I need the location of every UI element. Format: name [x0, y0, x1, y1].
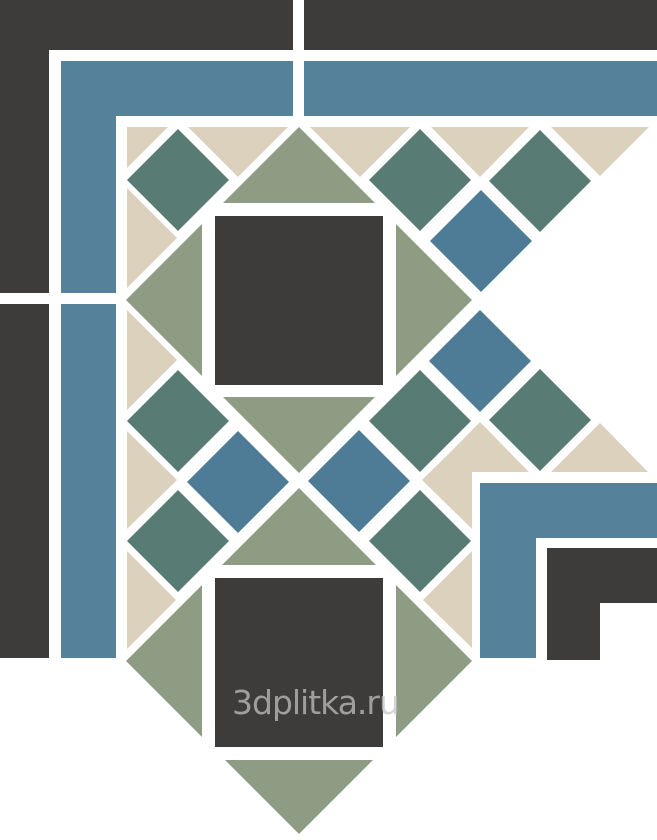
outer-dark-left-strip: [0, 304, 49, 658]
outer-blue-top-strip: [304, 61, 657, 116]
outer-dark-top-strip: [304, 0, 657, 50]
tile-pattern: 3dplitka.ru: [0, 0, 657, 840]
outer-blue-left-strip: [61, 304, 116, 658]
watermark-text: 3dplitka.ru: [232, 683, 399, 722]
tile-product-image: 3dplitka.ru: [0, 0, 657, 840]
inner-dark-step: [547, 548, 657, 660]
dark-center-square-1: [215, 216, 383, 385]
